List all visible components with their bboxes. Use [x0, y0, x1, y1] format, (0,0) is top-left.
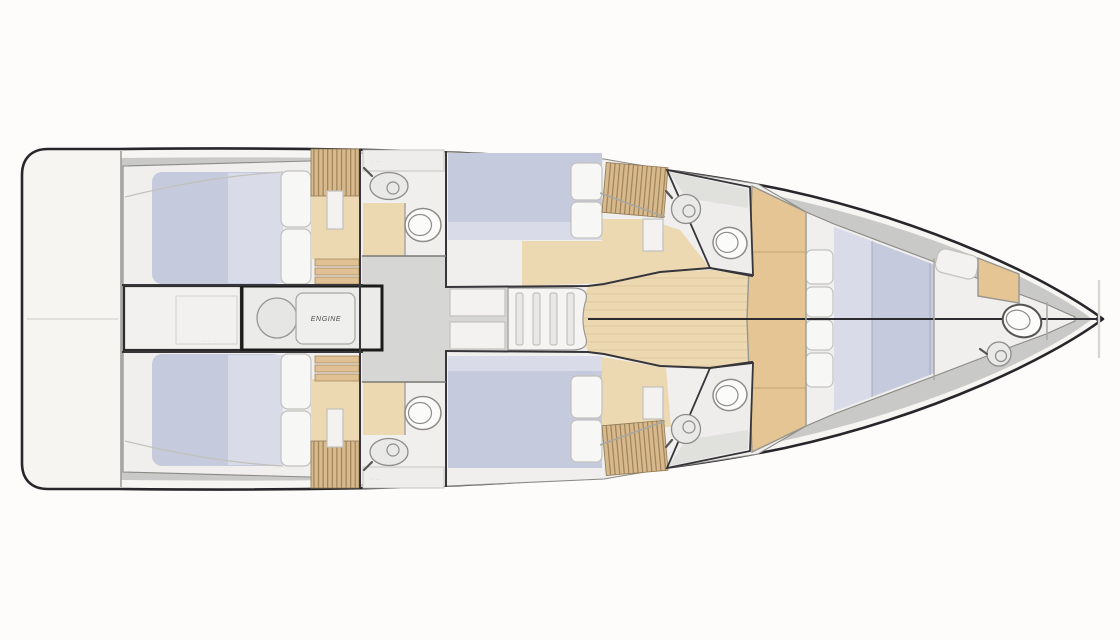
slatted-bench-port: [602, 162, 668, 217]
cabin-aft-starboard-door: [327, 409, 343, 447]
pillow: [571, 163, 602, 200]
wardrobe: [643, 387, 663, 419]
sink-icon: [370, 173, 408, 200]
slatted-bench-starboard: [602, 420, 668, 475]
seat-back-cushion: [806, 320, 833, 350]
cabin-aft-port-door: [327, 191, 343, 229]
yacht-floor-plan: · · · ENGINE · ·· · ··: [0, 0, 1120, 640]
bed-aft-starboard-throw: [228, 355, 283, 465]
bed-aft-port-throw: [228, 173, 283, 283]
step: [315, 277, 359, 284]
head-floor: [363, 382, 405, 435]
pillow: [571, 420, 602, 462]
step: [315, 374, 359, 381]
pillow: [281, 229, 311, 284]
pillow: [281, 411, 311, 466]
companionway-grating-starboard: [311, 441, 359, 488]
head-floor: [363, 203, 405, 256]
wardrobe: [643, 219, 663, 251]
pillow: [281, 171, 311, 227]
storage-label: · · ·: [204, 339, 217, 344]
stair-tread: [550, 293, 557, 345]
landing-locker-port: [450, 289, 505, 316]
sink-icon: [672, 195, 701, 224]
toilet-icon: [405, 397, 441, 430]
stair-tread: [567, 293, 574, 345]
step: [315, 268, 359, 275]
generator: [257, 298, 297, 338]
counter-label: · ··: [371, 159, 382, 164]
floor-plan-canvas: · · · ENGINE · ·· · ··: [0, 0, 1120, 640]
counter-label: · ··: [371, 477, 382, 482]
companionway-grating-port: [311, 149, 359, 196]
step: [315, 356, 359, 363]
seat-back-cushion: [806, 250, 833, 284]
pillow: [571, 376, 602, 418]
pillow: [571, 202, 602, 238]
step: [315, 365, 359, 372]
toilet-icon: [405, 209, 441, 242]
engine-label: ENGINE: [311, 316, 341, 323]
bed-mid-starboard-head: [448, 356, 602, 371]
sink-icon: [672, 415, 701, 444]
stair-tread: [533, 293, 540, 345]
pillow: [281, 354, 311, 409]
companionway-stairs: [508, 288, 586, 350]
sink-icon: [370, 439, 408, 466]
landing-locker-starboard: [450, 322, 505, 349]
seat-back-cushion: [806, 287, 833, 317]
storage-locker: · · ·: [124, 286, 241, 350]
seat-back-cushion: [806, 353, 833, 387]
step: [315, 259, 359, 266]
stair-tread: [516, 293, 523, 345]
sink-icon: [987, 342, 1011, 366]
